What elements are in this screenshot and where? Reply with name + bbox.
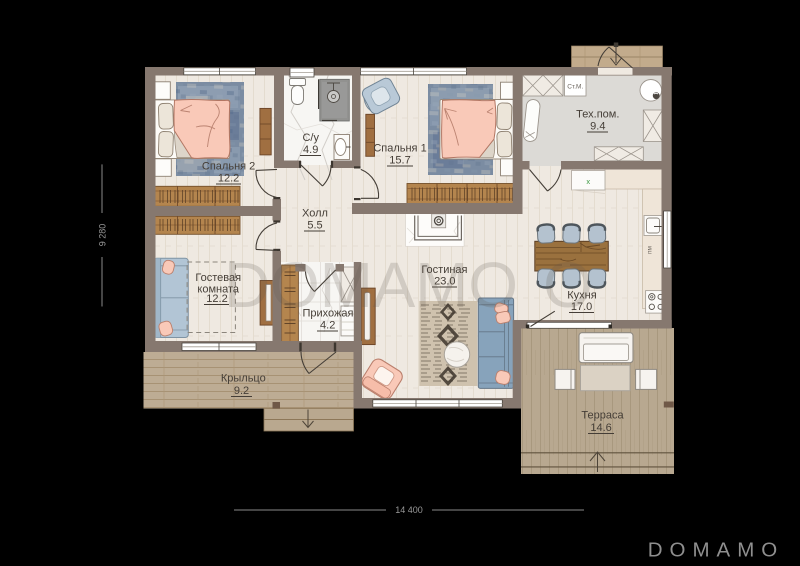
svg-text:9 280: 9 280 [98,224,108,247]
svg-text:пм: пм [647,245,654,254]
svg-text:Спальня 2: Спальня 2 [202,161,255,173]
svg-text:14.6: 14.6 [590,422,611,434]
svg-text:5.5: 5.5 [307,220,322,232]
svg-text:Ст.М.: Ст.М. [567,84,583,91]
svg-text:14 400: 14 400 [395,505,423,515]
svg-text:4.2: 4.2 [320,320,335,332]
svg-text:x: x [586,177,590,186]
svg-text:4.9: 4.9 [303,144,318,156]
svg-text:15.7: 15.7 [389,155,410,167]
svg-text:Спальня 1: Спальня 1 [373,143,426,155]
svg-text:Терраса: Терраса [581,410,624,422]
svg-text:O: O [543,249,593,321]
svg-text:9.4: 9.4 [590,121,605,133]
svg-text:12.2: 12.2 [218,173,239,185]
svg-text:Тех.пом.: Тех.пом. [576,109,619,121]
svg-text:С/у: С/у [302,132,319,144]
svg-text:DOMAMO: DOMAMO [648,539,785,562]
svg-text:Холл: Холл [302,208,328,220]
svg-text:9.2: 9.2 [234,385,249,397]
svg-text:Крыльцо: Крыльцо [221,373,266,385]
svg-text:DOMAMO: DOMAMO [224,249,527,321]
